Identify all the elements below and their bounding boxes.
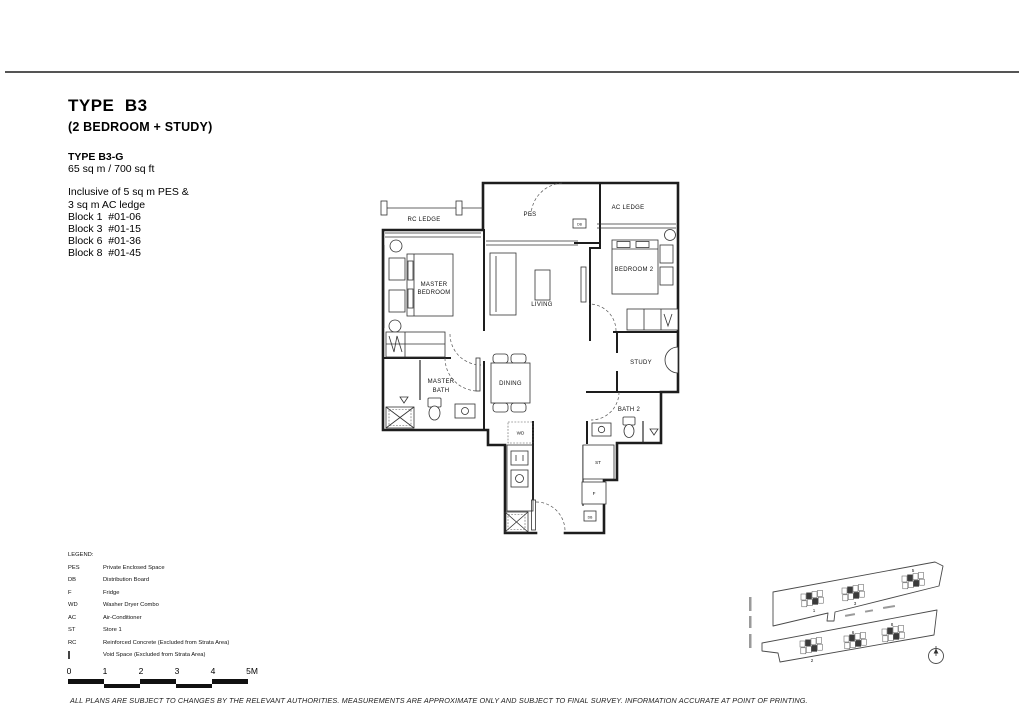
scale-tick: 0 [67,666,72,676]
legend-desc: Private Enclosed Space [103,562,165,575]
study-furniture [665,347,678,373]
legend-row-wd: WD Washer Dryer Combo [68,599,229,612]
legend-row-rc: RC Reinforced Concrete (Excluded from St… [68,637,229,650]
legend-row-store: ST Store 1 [68,624,229,637]
store-label: ST [595,460,601,465]
scale-segment [104,684,140,689]
unit-inclusive-line1: Inclusive of 5 sq m PES & [68,186,189,198]
scale-tick: 5M [246,666,258,676]
unit-area: 65 sq m / 700 sq ft [68,163,189,175]
rc-ledge-label: RC LEDGE [407,217,440,223]
block-number: 2 [811,658,814,663]
master-bedroom-furniture [386,240,453,357]
legend-row-void: Void Space (Excluded from Strata Area) [68,649,229,662]
legend-row-fridge: F Fridge [68,587,229,600]
fridge-label: F [593,491,596,496]
legend-desc: Fridge [103,587,119,600]
legend-row-ac: AC Air-Conditioner [68,612,229,625]
scale-segment [140,679,176,684]
master-bath-label-line1: MASTER [428,379,455,385]
legend-desc: Void Space (Excluded from Strata Area) [103,649,205,662]
db-label-top: DB [577,223,582,227]
page-title: TYPE B3 [68,96,148,116]
unit-block-4: Block 8 #01-45 [68,247,189,259]
bath2-label: BATH 2 [618,407,641,413]
master-bedroom-label-line2: BEDROOM [417,290,450,296]
bedroom2-label: BEDROOM 2 [615,267,654,273]
legend-abbr [68,649,103,662]
pes-label: PES [524,212,537,218]
master-bath-label-line2: BATH [433,388,450,394]
master-bedroom-label-line1: MASTER [421,282,448,288]
legend-abbr: PES [68,562,103,575]
legend-row-db: DB Distribution Board [68,574,229,587]
footer-disclaimer: ALL PLANS ARE SUBJECT TO CHANGES BY THE … [70,696,808,705]
unit-variant: TYPE B3-G [68,151,189,163]
wd-label: WD [517,431,525,436]
site-road-text-marks [749,597,895,648]
scale-segment [176,684,212,689]
north-arrow-icon [929,646,944,664]
dining-label: DINING [499,381,522,387]
scale-segment [212,679,248,684]
floor-plan-page: TYPE B3 (2 BEDROOM + STUDY) TYPE B3-G 65… [0,0,1024,724]
living-label: LIVING [531,302,553,308]
scale-tick: 3 [175,666,180,676]
scale-tick: 2 [139,666,144,676]
bedroom2-furniture [612,230,678,331]
scale-tick: 4 [211,666,216,676]
legend-desc: Distribution Board [103,574,149,587]
site-building-clusters [800,572,924,653]
void-space-icon [68,651,70,659]
ac-ledge-label: AC LEDGE [612,205,645,211]
legend-abbr: RC [68,637,103,650]
top-divider [5,71,1019,73]
block-number: 1 [813,608,816,613]
legend-abbr: F [68,587,103,600]
legend-abbr: ST [68,624,103,637]
legend-abbr: WD [68,599,103,612]
scale-segment [68,679,104,684]
legend-row-pes: PES Private Enclosed Space [68,562,229,575]
floor-plan-drawing: RC LEDGE PES AC LEDGE MASTER BEDROOM BED… [372,172,694,550]
legend-abbr: AC [68,612,103,625]
block-number: 8 [891,622,894,627]
legend: LEGEND: PES Private Enclosed Space DB Di… [68,549,229,662]
unit-block-2: Block 3 #01-15 [68,223,189,235]
scale-tick: 1 [103,666,108,676]
site-plan: 1 3 5 2 6 8 [735,552,970,684]
legend-title: LEGEND: [68,549,229,562]
db-label-bottom: DB [588,516,593,520]
study-label: STUDY [630,360,652,366]
block-number: 5 [912,568,915,573]
block-number: 3 [854,601,857,606]
legend-abbr: DB [68,574,103,587]
bath2-fixtures [592,417,658,438]
master-bath-fixtures [386,397,475,428]
scale-bar: 0 1 2 3 4 5M [66,666,266,692]
page-subtitle: (2 BEDROOM + STUDY) [68,120,212,134]
legend-desc: Washer Dryer Combo [103,599,159,612]
legend-desc: Store 1 [103,624,122,637]
unit-info: TYPE B3-G 65 sq m / 700 sq ft Inclusive … [68,151,189,260]
unit-inclusive-line2: 3 sq m AC ledge [68,199,189,211]
unit-block-1: Block 1 #01-06 [68,211,189,223]
block-number: 6 [852,630,855,635]
legend-desc: Reinforced Concrete (Excluded from Strat… [103,637,229,650]
rc-ledge [381,201,483,215]
legend-desc: Air-Conditioner [103,612,142,625]
unit-block-3: Block 6 #01-36 [68,235,189,247]
